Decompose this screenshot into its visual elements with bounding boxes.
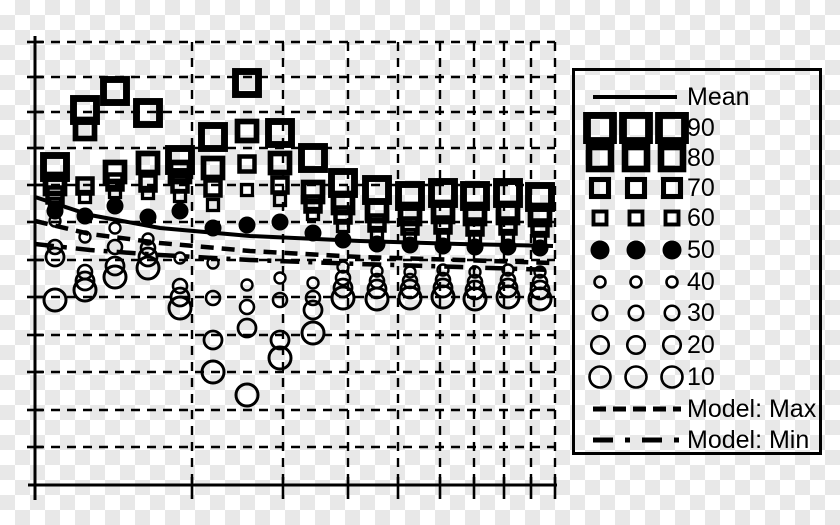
marker-circle-10 — [104, 266, 126, 288]
legend-item-70: 70 — [575, 172, 819, 204]
circle-filled-glyph — [663, 241, 682, 260]
legend-symbol-circle — [581, 266, 691, 298]
circle-glyph — [593, 306, 608, 321]
marker-circle-10 — [169, 297, 191, 319]
marker-median-50 — [172, 203, 189, 220]
legend-symbol-square — [581, 202, 691, 234]
marker-square-90 — [202, 126, 225, 149]
legend-label: 30 — [687, 297, 715, 329]
marker-square-60 — [208, 200, 219, 211]
square-glyph — [630, 212, 643, 225]
marker-median-50 — [369, 236, 386, 253]
legend-symbol-line-dashed — [581, 393, 691, 425]
legend-symbol-circle — [581, 297, 691, 329]
legend-item-50: 50 — [575, 234, 819, 266]
legend-item-10: 10 — [575, 361, 819, 393]
legend-label: 40 — [687, 266, 715, 298]
legend-symbol-square — [581, 112, 691, 144]
marker-square-60 — [80, 192, 91, 203]
square-glyph — [625, 147, 647, 169]
circle-glyph — [665, 306, 680, 321]
square-glyph — [589, 147, 611, 169]
marker-circle-20 — [204, 331, 222, 349]
square-glyph — [623, 115, 649, 141]
legend-item-20: 20 — [575, 329, 819, 361]
legend-symbol-circle-filled — [581, 234, 691, 266]
square-glyph — [587, 115, 613, 141]
legend-label: 60 — [687, 202, 715, 234]
marker-square-70 — [206, 181, 221, 196]
legend-item-40: 40 — [575, 266, 819, 298]
legend-label: 90 — [687, 112, 715, 144]
marker-circle-30 — [240, 300, 254, 314]
square-glyph — [659, 115, 685, 141]
square-glyph — [594, 212, 607, 225]
square-glyph — [661, 147, 683, 169]
marker-square-80 — [76, 120, 95, 139]
marker-square-90 — [269, 122, 292, 145]
circle-glyph — [663, 336, 681, 354]
square-glyph — [592, 180, 609, 197]
marker-median-50 — [435, 238, 452, 255]
marker-square-90 — [366, 179, 389, 202]
marker-median-50 — [107, 198, 124, 215]
marker-square-60 — [242, 185, 253, 196]
marker-square-60 — [308, 209, 319, 220]
square-glyph — [666, 212, 679, 225]
legend-item-model-min: Model: Min — [575, 424, 819, 456]
marker-circle-10 — [236, 384, 258, 406]
legend-symbol-line-dashdot — [581, 424, 691, 456]
marker-circle-30 — [273, 293, 287, 307]
marker-circle-40 — [110, 223, 121, 234]
marker-square-60 — [275, 195, 286, 206]
square-glyph — [664, 180, 681, 197]
legend-label: 80 — [687, 142, 715, 174]
marker-square-60 — [110, 187, 121, 198]
marker-circle-40 — [275, 273, 286, 284]
marker-median-50 — [532, 240, 549, 257]
marker-square-80 — [238, 122, 257, 141]
legend-symbol-circle — [581, 329, 691, 361]
marker-square-80 — [204, 159, 223, 178]
circle-glyph — [590, 367, 611, 388]
legend-item-mean: Mean — [575, 81, 819, 113]
circle-filled-glyph — [627, 241, 646, 260]
marker-circle-40 — [242, 280, 253, 291]
legend-item-60: 60 — [575, 202, 819, 234]
legend-label: 70 — [687, 172, 715, 204]
legend-item-90: 90 — [575, 112, 819, 144]
legend-symbol-circle — [581, 361, 691, 393]
circle-glyph — [667, 277, 678, 288]
marker-square-90 — [302, 147, 325, 170]
legend-label: Model: Max — [687, 393, 816, 425]
circle-glyph — [591, 336, 609, 354]
legend-label: 20 — [687, 329, 715, 361]
legend-label: 50 — [687, 234, 715, 266]
legend-item-model-max: Model: Max — [575, 393, 819, 425]
marker-square-90 — [104, 80, 127, 103]
square-glyph — [628, 180, 645, 197]
legend-box: Mean908070605040302010Model: MaxModel: M… — [572, 68, 822, 455]
legend-item-30: 30 — [575, 297, 819, 329]
circle-filled-glyph — [591, 241, 610, 260]
legend-item-80: 80 — [575, 142, 819, 174]
marker-square-60 — [143, 188, 154, 199]
circle-glyph — [662, 367, 683, 388]
marker-median-50 — [467, 239, 484, 256]
legend-label: 10 — [687, 361, 715, 393]
circle-glyph — [627, 336, 645, 354]
legend-symbol-square — [581, 142, 691, 174]
legend-symbol-square — [581, 172, 691, 204]
legend-symbol-line-solid — [581, 81, 691, 113]
marker-square-80 — [139, 154, 158, 173]
marker-circle-10 — [44, 289, 66, 311]
legend-label: Mean — [687, 81, 750, 113]
marker-median-50 — [272, 214, 289, 231]
marker-square-60 — [338, 221, 349, 232]
marker-circle-10 — [302, 322, 324, 344]
marker-circle-40 — [308, 278, 319, 289]
marker-square-90 — [236, 72, 259, 95]
circle-glyph — [626, 367, 647, 388]
marker-median-50 — [239, 217, 256, 234]
marker-median-50 — [402, 237, 419, 254]
legend-label: Model: Min — [687, 424, 809, 456]
marker-square-80 — [271, 154, 290, 173]
figure-canvas: Mean908070605040302010Model: MaxModel: M… — [0, 0, 840, 525]
marker-circle-20 — [46, 248, 64, 266]
circle-glyph — [595, 277, 606, 288]
circle-glyph — [629, 306, 644, 321]
marker-square-70 — [240, 157, 255, 172]
marker-square-60 — [175, 191, 186, 202]
circle-glyph — [631, 277, 642, 288]
